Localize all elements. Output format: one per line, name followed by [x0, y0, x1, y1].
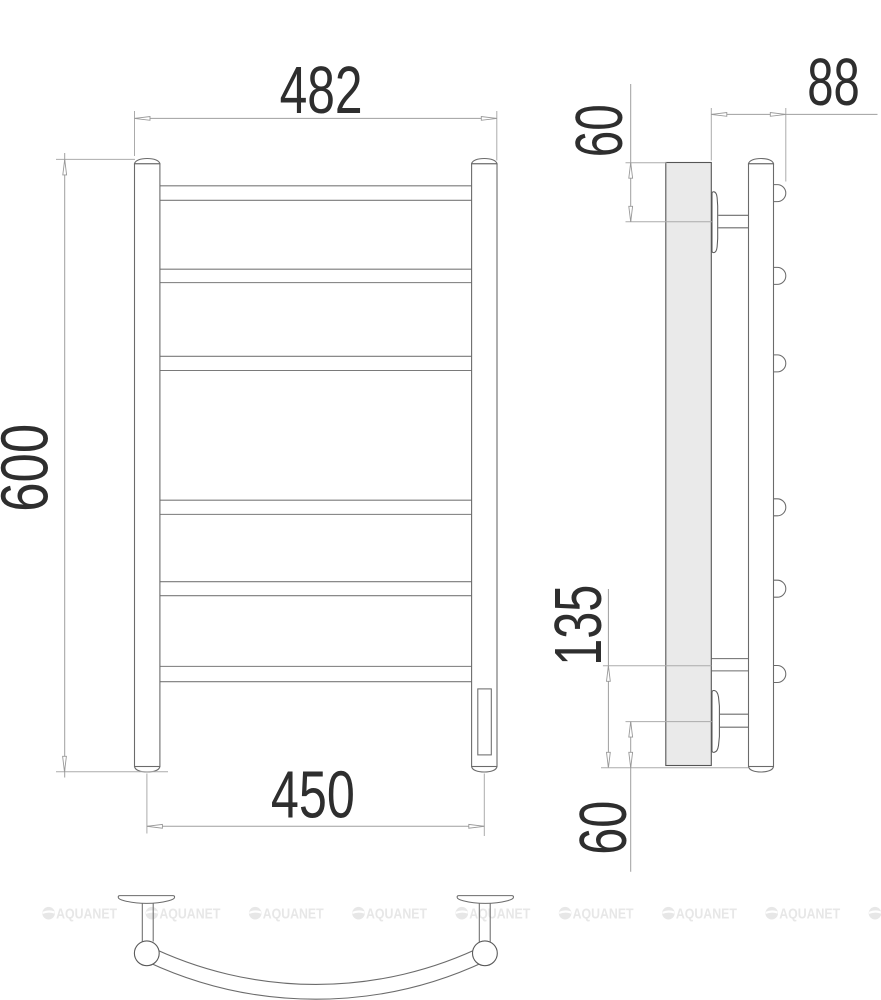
svg-text:600: 600 — [0, 424, 62, 512]
svg-text:AQUANET: AQUANET — [366, 906, 427, 922]
svg-text:482: 482 — [280, 54, 363, 128]
svg-text:AQUANET: AQUANET — [469, 906, 530, 922]
svg-text:60: 60 — [567, 801, 641, 855]
svg-text:88: 88 — [807, 46, 860, 120]
svg-text:AQUANET: AQUANET — [573, 906, 634, 922]
svg-text:450: 450 — [271, 759, 355, 833]
svg-text:AQUANET: AQUANET — [159, 906, 220, 922]
svg-text:AQUANET: AQUANET — [676, 906, 737, 922]
svg-text:AQUANET: AQUANET — [56, 906, 117, 922]
svg-text:AQUANET: AQUANET — [779, 906, 840, 922]
svg-text:AQUANET: AQUANET — [263, 906, 324, 922]
svg-text:60: 60 — [563, 104, 637, 157]
svg-text:135: 135 — [542, 585, 616, 666]
